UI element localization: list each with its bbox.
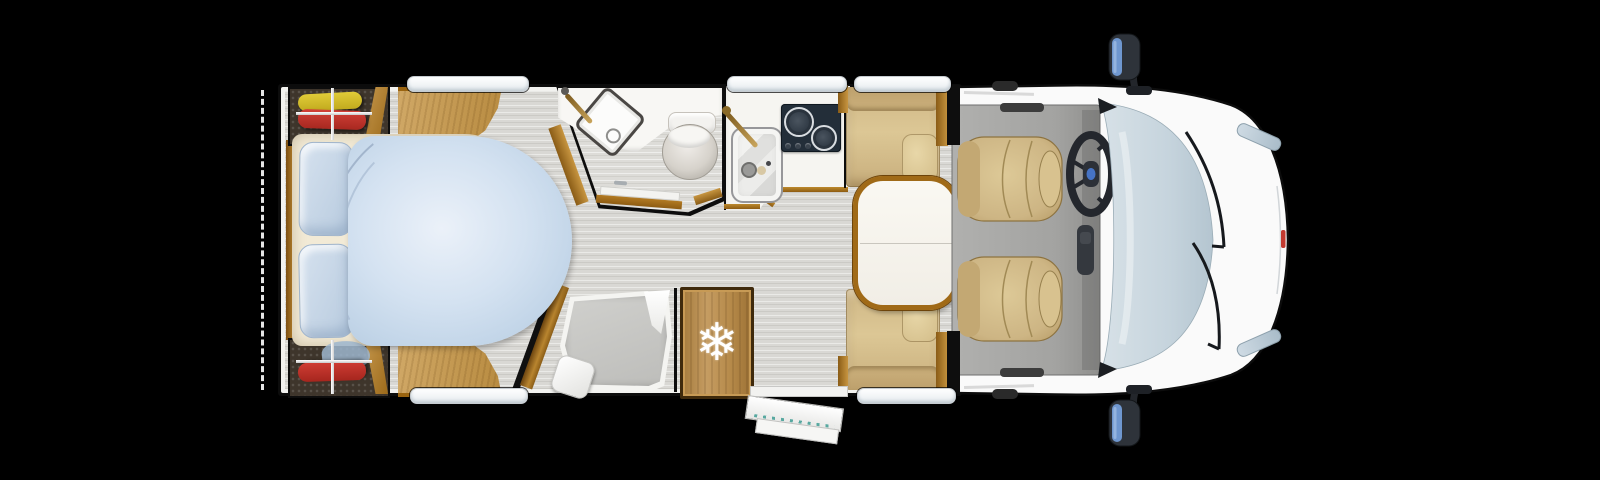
- wardrobe-hanger-bar-bottom: [296, 360, 372, 363]
- cab-door-sill-bottom: [1000, 368, 1044, 377]
- bathroom-faucet-knob: [561, 87, 569, 95]
- kitchen-sink: [731, 127, 783, 203]
- kitchen-sink-drain: [741, 162, 757, 178]
- cab-door-sill-top: [1000, 103, 1044, 112]
- hob-burner-small: [811, 125, 837, 151]
- cab-seat-passenger: [958, 257, 1062, 341]
- window-bottom-bedroom: [410, 388, 528, 404]
- dinette-bench-front: [846, 87, 940, 187]
- window-top-dinette: [854, 76, 951, 92]
- shower-fridge-divider: [674, 288, 677, 392]
- bed-duvet: [348, 136, 572, 346]
- hob-knob-1: [785, 143, 791, 149]
- cab-seat-driver: [958, 137, 1062, 221]
- fridge: ❄: [680, 287, 754, 399]
- bathroom: [556, 86, 726, 216]
- motorhome-floorplan: ❄: [0, 0, 1600, 480]
- wardrobe-rail-bottom: [331, 340, 334, 394]
- cab-door-handle-bottom: [992, 389, 1018, 399]
- kitchen-counter-trim-right: [772, 187, 848, 192]
- hob-knob-2: [795, 143, 801, 149]
- gear-selector: [1080, 232, 1091, 244]
- hob-knob-3: [805, 143, 811, 149]
- cab-pillar-top: [947, 85, 960, 145]
- kitchen-sink-plug: [757, 166, 766, 175]
- pillow-bottom: [298, 243, 354, 338]
- pillow-top: [299, 142, 354, 237]
- rear-door-seam: [261, 90, 264, 390]
- front-badge: [1281, 230, 1286, 248]
- window-top-bedroom: [407, 76, 529, 92]
- dinette-table-seam: [860, 243, 952, 244]
- window-top-kitchen: [727, 76, 847, 92]
- entry-door-sill: [750, 386, 848, 397]
- bathroom-sink-drain: [603, 125, 624, 146]
- window-bottom-dinette: [857, 388, 956, 404]
- cab-door-handle-top: [992, 81, 1018, 91]
- dinette-bench-front-cushion: [902, 134, 938, 182]
- cab-pillar-bottom: [947, 331, 960, 394]
- cab-and-vehicle-front: [940, 20, 1300, 460]
- toilet-lid: [668, 126, 710, 148]
- dinette-bench-rear-backrest: [846, 366, 940, 390]
- kitchen-sink-handle: [766, 161, 771, 166]
- wardrobe-hanger-bar-top: [296, 112, 372, 115]
- bathroom-door-handle: [614, 181, 627, 186]
- kitchen-faucet-base: [722, 106, 731, 115]
- snowflake-icon: ❄: [683, 290, 751, 396]
- kitchen-counter-trim-left: [724, 204, 760, 209]
- hob-burner-large: [784, 107, 814, 137]
